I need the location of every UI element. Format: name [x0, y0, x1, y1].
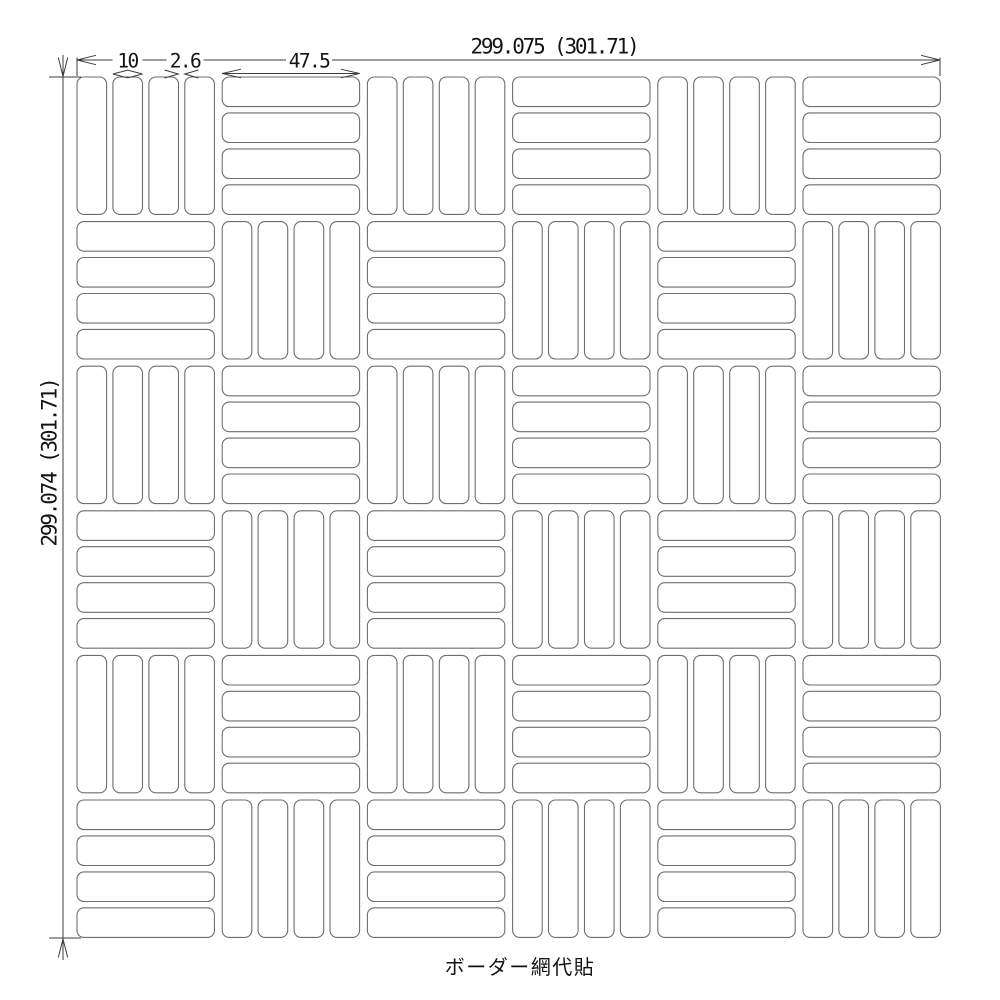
tile-bar: [222, 402, 359, 432]
tile-bar: [77, 836, 214, 866]
overall-width-label: 299.075 (301.71): [470, 35, 637, 59]
tile-bar: [549, 800, 579, 937]
tile-bar: [475, 655, 505, 792]
tile-bar: [658, 836, 795, 866]
tile-bar: [658, 329, 795, 359]
tile-bar: [658, 619, 795, 649]
tile-width-dimension: 10: [113, 49, 143, 78]
tile-bar: [803, 763, 940, 793]
tile-block: [658, 800, 795, 937]
tile-bar: [803, 77, 940, 107]
tile-block: [803, 511, 940, 648]
tile-bar: [803, 366, 940, 396]
tile-block: [803, 800, 940, 937]
tile-bar: [658, 222, 795, 252]
tile-bar: [803, 727, 940, 757]
tile-block: [77, 366, 214, 503]
tile-bar: [475, 77, 505, 214]
tile-bar: [911, 511, 941, 648]
tile-bar: [658, 258, 795, 288]
tile-block: [803, 222, 940, 359]
tile-bar: [839, 800, 869, 937]
tile-pattern-grid: [77, 77, 940, 937]
tile-bar: [513, 366, 650, 396]
tile-bar: [367, 329, 504, 359]
tile-bar: [513, 149, 650, 179]
tile-bar: [803, 800, 833, 937]
tile-bar: [439, 366, 469, 503]
tile-bar: [475, 366, 505, 503]
tile-bar: [185, 77, 215, 214]
tile-bar: [222, 474, 359, 504]
tile-bar: [585, 800, 615, 937]
tile-bar: [585, 511, 615, 648]
tile-bar: [222, 113, 359, 143]
tile-block: [367, 511, 504, 648]
tile-bar: [367, 872, 504, 902]
tile-block: [658, 222, 795, 359]
tile-bar: [585, 222, 615, 359]
tile-block: [77, 511, 214, 648]
tile-block: [658, 366, 795, 503]
tile-bar: [513, 222, 543, 359]
tile-bar: [513, 800, 543, 937]
tile-bar: [839, 511, 869, 648]
tile-bar: [222, 222, 252, 359]
tile-bar: [367, 222, 504, 252]
tile-bar: [77, 77, 107, 214]
tile-bar: [549, 511, 579, 648]
tile-bar: [77, 655, 107, 792]
tile-bar: [658, 800, 795, 830]
drawing-caption: ボーダー網代貼: [445, 955, 596, 979]
tile-bar: [77, 258, 214, 288]
tile-bar: [658, 583, 795, 613]
tile-layout-drawing: 299.075 (301.71) 299.074 (301.71) 10 2.6: [0, 0, 1000, 1000]
tile-bar: [222, 149, 359, 179]
tile-bar: [367, 836, 504, 866]
tile-bar: [439, 655, 469, 792]
tile-block: [222, 800, 359, 937]
tile-bar: [77, 329, 214, 359]
tile-block: [367, 800, 504, 937]
tile-bar: [222, 763, 359, 793]
tile-bar: [367, 511, 504, 541]
tile-bar: [367, 583, 504, 613]
tile-bar: [367, 800, 504, 830]
tile-bar: [367, 77, 397, 214]
tile-bar: [77, 547, 214, 577]
tile-bar: [803, 511, 833, 648]
tile-bar: [330, 511, 360, 648]
tile-bar: [694, 366, 724, 503]
tile-bar: [730, 366, 760, 503]
tile-bar: [367, 547, 504, 577]
tile-bar: [513, 402, 650, 432]
tile-bar: [77, 366, 107, 503]
tile-bar: [803, 149, 940, 179]
tile-block: [367, 366, 504, 503]
joint-width-label: 2.6: [170, 49, 201, 72]
tile-bar: [730, 77, 760, 214]
tile-bar: [694, 77, 724, 214]
tile-bar: [658, 908, 795, 938]
tile-width-label: 10: [117, 49, 138, 72]
tile-bar: [513, 763, 650, 793]
tile-bar: [439, 77, 469, 214]
tile-bar: [694, 655, 724, 792]
tile-bar: [620, 222, 650, 359]
tile-bar: [658, 366, 688, 503]
tile-block: [77, 800, 214, 937]
tile-bar: [549, 222, 579, 359]
tile-bar: [730, 655, 760, 792]
tile-bar: [513, 691, 650, 721]
tile-bar: [367, 655, 397, 792]
tile-bar: [513, 655, 650, 685]
tile-bar: [766, 655, 796, 792]
tile-bar: [513, 474, 650, 504]
tile-block: [513, 655, 650, 792]
tile-block: [513, 77, 650, 214]
tile-block: [513, 366, 650, 503]
tile-bar: [513, 438, 650, 468]
tile-block: [658, 655, 795, 792]
tile-length-dimension: 47.5: [222, 49, 359, 78]
tile-bar: [77, 583, 214, 613]
tile-bar: [77, 511, 214, 541]
tile-block: [222, 222, 359, 359]
top-dimension: 299.075 (301.71): [77, 35, 940, 77]
tile-bar: [803, 222, 833, 359]
tile-bar: [911, 800, 941, 937]
joint-dimension: 2.6: [165, 49, 204, 78]
tile-block: [513, 800, 650, 937]
tile-bar: [803, 438, 940, 468]
tile-bar: [330, 800, 360, 937]
tile-bar: [658, 547, 795, 577]
tile-bar: [222, 655, 359, 685]
tile-bar: [513, 185, 650, 215]
tile-block: [367, 655, 504, 792]
tile-block: [803, 366, 940, 503]
tile-bar: [77, 800, 214, 830]
tile-bar: [149, 77, 179, 214]
tile-bar: [77, 872, 214, 902]
tile-bar: [294, 511, 324, 648]
tile-block: [658, 77, 795, 214]
tile-bar: [658, 294, 795, 324]
tile-bar: [222, 366, 359, 396]
tile-bar: [513, 77, 650, 107]
tile-block: [367, 222, 504, 359]
tile-bar: [222, 727, 359, 757]
tile-bar: [766, 77, 796, 214]
tile-bar: [149, 366, 179, 503]
tile-bar: [367, 258, 504, 288]
tile-bar: [113, 366, 143, 503]
tile-bar: [367, 908, 504, 938]
left-dimension: 299.074 (301.71): [38, 55, 82, 960]
technical-drawing-page: 299.075 (301.71) 299.074 (301.71) 10 2.6: [0, 0, 1000, 1000]
tile-block: [222, 77, 359, 214]
tile-bar: [620, 800, 650, 937]
tile-bar: [185, 366, 215, 503]
tile-bar: [222, 77, 359, 107]
tile-bar: [403, 77, 433, 214]
tile-bar: [294, 222, 324, 359]
tile-bar: [77, 908, 214, 938]
tile-block: [77, 655, 214, 792]
tile-bar: [875, 511, 905, 648]
tile-block: [77, 222, 214, 359]
tile-block: [77, 77, 214, 214]
tile-bar: [403, 655, 433, 792]
tile-bar: [113, 77, 143, 214]
tile-block: [803, 77, 940, 214]
tile-bar: [258, 222, 288, 359]
tile-length-label: 47.5: [289, 49, 330, 72]
tile-bar: [403, 366, 433, 503]
tile-bar: [367, 619, 504, 649]
tile-block: [513, 511, 650, 648]
tile-bar: [77, 294, 214, 324]
tile-bar: [766, 366, 796, 503]
tile-bar: [513, 113, 650, 143]
tile-bar: [620, 511, 650, 648]
tile-bar: [875, 222, 905, 359]
tile-bar: [185, 655, 215, 792]
tile-bar: [367, 294, 504, 324]
tile-block: [658, 511, 795, 648]
tile-bar: [658, 511, 795, 541]
tile-bar: [911, 222, 941, 359]
tile-block: [803, 655, 940, 792]
tile-bar: [77, 619, 214, 649]
tile-block: [367, 77, 504, 214]
tile-bar: [222, 511, 252, 648]
tile-block: [222, 366, 359, 503]
tile-bar: [513, 511, 543, 648]
tile-bar: [149, 655, 179, 792]
tile-bar: [222, 185, 359, 215]
tile-bar: [113, 655, 143, 792]
tile-bar: [875, 800, 905, 937]
tile-bar: [803, 113, 940, 143]
tile-bar: [803, 402, 940, 432]
tile-bar: [803, 474, 940, 504]
tile-bar: [658, 655, 688, 792]
tile-bar: [803, 691, 940, 721]
tile-bar: [658, 872, 795, 902]
tile-bar: [803, 655, 940, 685]
tile-bar: [330, 222, 360, 359]
tile-bar: [222, 691, 359, 721]
tile-bar: [658, 77, 688, 214]
tile-bar: [77, 222, 214, 252]
tile-block: [222, 655, 359, 792]
tile-bar: [222, 800, 252, 937]
tile-bar: [258, 800, 288, 937]
tile-bar: [294, 800, 324, 937]
tile-block: [513, 222, 650, 359]
overall-height-label: 299.074 (301.71): [38, 379, 62, 546]
tile-bar: [803, 185, 940, 215]
tile-bar: [839, 222, 869, 359]
tile-bar: [258, 511, 288, 648]
tile-bar: [513, 727, 650, 757]
tile-bar: [222, 438, 359, 468]
tile-block: [222, 511, 359, 648]
tile-bar: [367, 366, 397, 503]
